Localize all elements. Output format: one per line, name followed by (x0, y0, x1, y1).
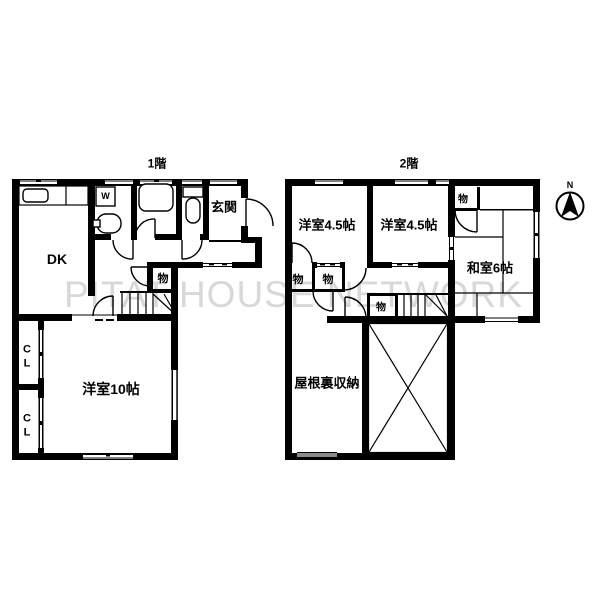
compass-north-label: N (567, 180, 574, 190)
walls-floor1 (12, 179, 262, 460)
room-label-western45-left: 洋室4.5帖 (298, 215, 355, 234)
kitchen-counter (19, 186, 88, 205)
floorplan-drawing (0, 0, 600, 600)
bathtub (139, 184, 173, 211)
room-label-western45-right: 洋室4.5帖 (380, 215, 437, 234)
washer-label: W (101, 191, 110, 201)
stairs-floor2 (404, 295, 447, 316)
room-label-storage-hall-center: 物 (323, 271, 334, 287)
compass-icon (557, 192, 584, 220)
room-label-closet-upper: CL (20, 343, 34, 372)
room-label-japanese: 和室6帖 (467, 258, 513, 277)
stairs-floor1 (122, 293, 176, 316)
doors-floor1 (93, 199, 273, 316)
room-label-attic: 屋根裏収納 (294, 373, 359, 392)
floorplan-canvas: PITAT HOUSE NETWORK (0, 0, 600, 600)
floor1-title: 1階 (148, 155, 167, 172)
void-x-area (369, 324, 448, 453)
room-label-storage-hall-left: 物 (293, 271, 304, 287)
washbasin (93, 214, 121, 233)
toilet (183, 187, 203, 223)
room-label-storage-hall-right: 物 (376, 299, 386, 314)
room-label-western10: 洋室10帖 (82, 379, 140, 399)
floor2-title: 2階 (400, 155, 419, 172)
room-label-storage-top: 物 (458, 191, 468, 206)
room-label-closet-lower: CL (20, 412, 34, 441)
room-label-entrance: 玄関 (211, 197, 237, 216)
room-label-storage-f1: 物 (158, 270, 169, 286)
room-label-dk: DK (47, 251, 67, 267)
